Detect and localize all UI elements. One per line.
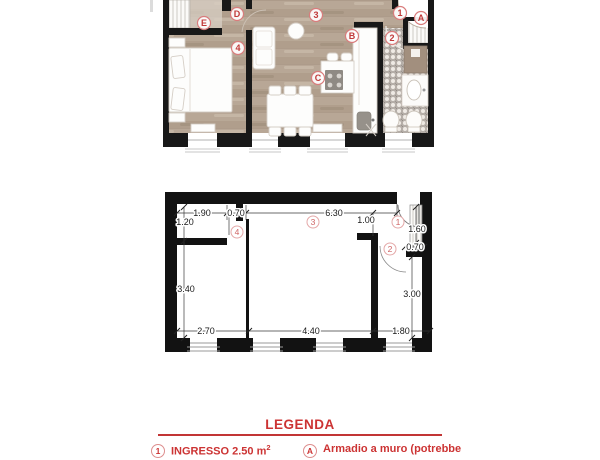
room-label-2: 2 bbox=[386, 32, 399, 45]
svg-text:0.70: 0.70 bbox=[406, 242, 424, 252]
svg-text:1: 1 bbox=[396, 217, 401, 227]
legend-marker-1: 1 bbox=[151, 444, 165, 458]
svg-text:0.70: 0.70 bbox=[227, 208, 245, 218]
legend-title: LEGENDA bbox=[150, 417, 450, 432]
svg-text:1.80: 1.80 bbox=[392, 326, 410, 336]
nightstand bbox=[169, 113, 185, 122]
svg-text:1: 1 bbox=[397, 8, 402, 18]
svg-text:B: B bbox=[349, 31, 356, 41]
toilet bbox=[383, 111, 399, 129]
room-label-1: 1 bbox=[392, 216, 404, 228]
svg-text:3.00: 3.00 bbox=[403, 289, 421, 299]
bath-sink bbox=[407, 80, 421, 100]
svg-text:E: E bbox=[201, 18, 207, 28]
legend-divider bbox=[158, 434, 442, 436]
svg-text:2.70: 2.70 bbox=[197, 326, 215, 336]
room-label-4: 4 bbox=[231, 226, 243, 238]
svg-text:1.20: 1.20 bbox=[176, 217, 194, 227]
svg-text:6.30: 6.30 bbox=[325, 208, 343, 218]
chair bbox=[284, 127, 296, 136]
svg-text:C: C bbox=[315, 73, 322, 83]
svg-text:A: A bbox=[418, 13, 425, 23]
room-labels: 4 3 1 2 bbox=[231, 216, 404, 255]
svg-text:2: 2 bbox=[388, 244, 393, 254]
chair bbox=[269, 127, 281, 136]
pillow bbox=[171, 87, 186, 110]
svg-text:4: 4 bbox=[235, 227, 240, 237]
chair bbox=[299, 127, 311, 136]
svg-text:1.60: 1.60 bbox=[408, 224, 426, 234]
legend-item-armadio: A Armadio a muro (potrebbe bbox=[303, 443, 461, 458]
chair bbox=[284, 86, 296, 95]
rendered-floor-plan: E D 3 1 A B 2 4 C bbox=[150, 0, 450, 175]
svg-text:1.00: 1.00 bbox=[357, 215, 375, 225]
room-label-B: B bbox=[346, 30, 359, 43]
room-label-2: 2 bbox=[384, 243, 396, 255]
radiator bbox=[191, 124, 215, 132]
room-label-E: E bbox=[198, 17, 211, 30]
room-label-4: 4 bbox=[232, 42, 245, 55]
pillow bbox=[171, 55, 186, 78]
legend-marker-a: A bbox=[303, 444, 317, 458]
svg-text:3: 3 bbox=[311, 217, 316, 227]
legend-item-label: INGRESSO 2.50 m2 bbox=[171, 443, 271, 458]
legend-item-ingresso: 1 INGRESSO 2.50 m2 bbox=[151, 443, 271, 458]
svg-text:2: 2 bbox=[389, 33, 394, 43]
svg-text:4: 4 bbox=[235, 43, 240, 53]
room-label-3: 3 bbox=[310, 9, 323, 22]
svg-text:1.90: 1.90 bbox=[193, 208, 211, 218]
stool bbox=[327, 53, 338, 61]
radiator bbox=[313, 124, 342, 132]
dimension-texts: 1.90 0.70 6.30 1.00 1.20 1.60 0.70 3.40 … bbox=[176, 208, 426, 336]
chair bbox=[269, 86, 281, 95]
room-label-D: D bbox=[231, 8, 244, 21]
dining-table bbox=[267, 94, 313, 127]
svg-text:4.40: 4.40 bbox=[302, 326, 320, 336]
room-label-1: 1 bbox=[394, 7, 407, 20]
nightstand bbox=[169, 38, 185, 47]
pouf bbox=[288, 23, 304, 39]
svg-text:3: 3 bbox=[313, 10, 318, 20]
stool bbox=[341, 53, 352, 61]
svg-text:D: D bbox=[234, 9, 241, 19]
room-label-3: 3 bbox=[307, 216, 319, 228]
room-label-A: A bbox=[415, 12, 428, 25]
dimensioned-floor-plan: 1.90 0.70 6.30 1.00 1.20 1.60 0.70 3.40 … bbox=[150, 185, 450, 360]
wardrobe-e-hatch bbox=[169, 0, 190, 28]
svg-text:3.40: 3.40 bbox=[177, 284, 195, 294]
bidet bbox=[406, 111, 422, 129]
legend-item-label: Armadio a muro (potrebbe bbox=[323, 443, 461, 455]
chair bbox=[299, 86, 311, 95]
room-label-C: C bbox=[312, 72, 325, 85]
